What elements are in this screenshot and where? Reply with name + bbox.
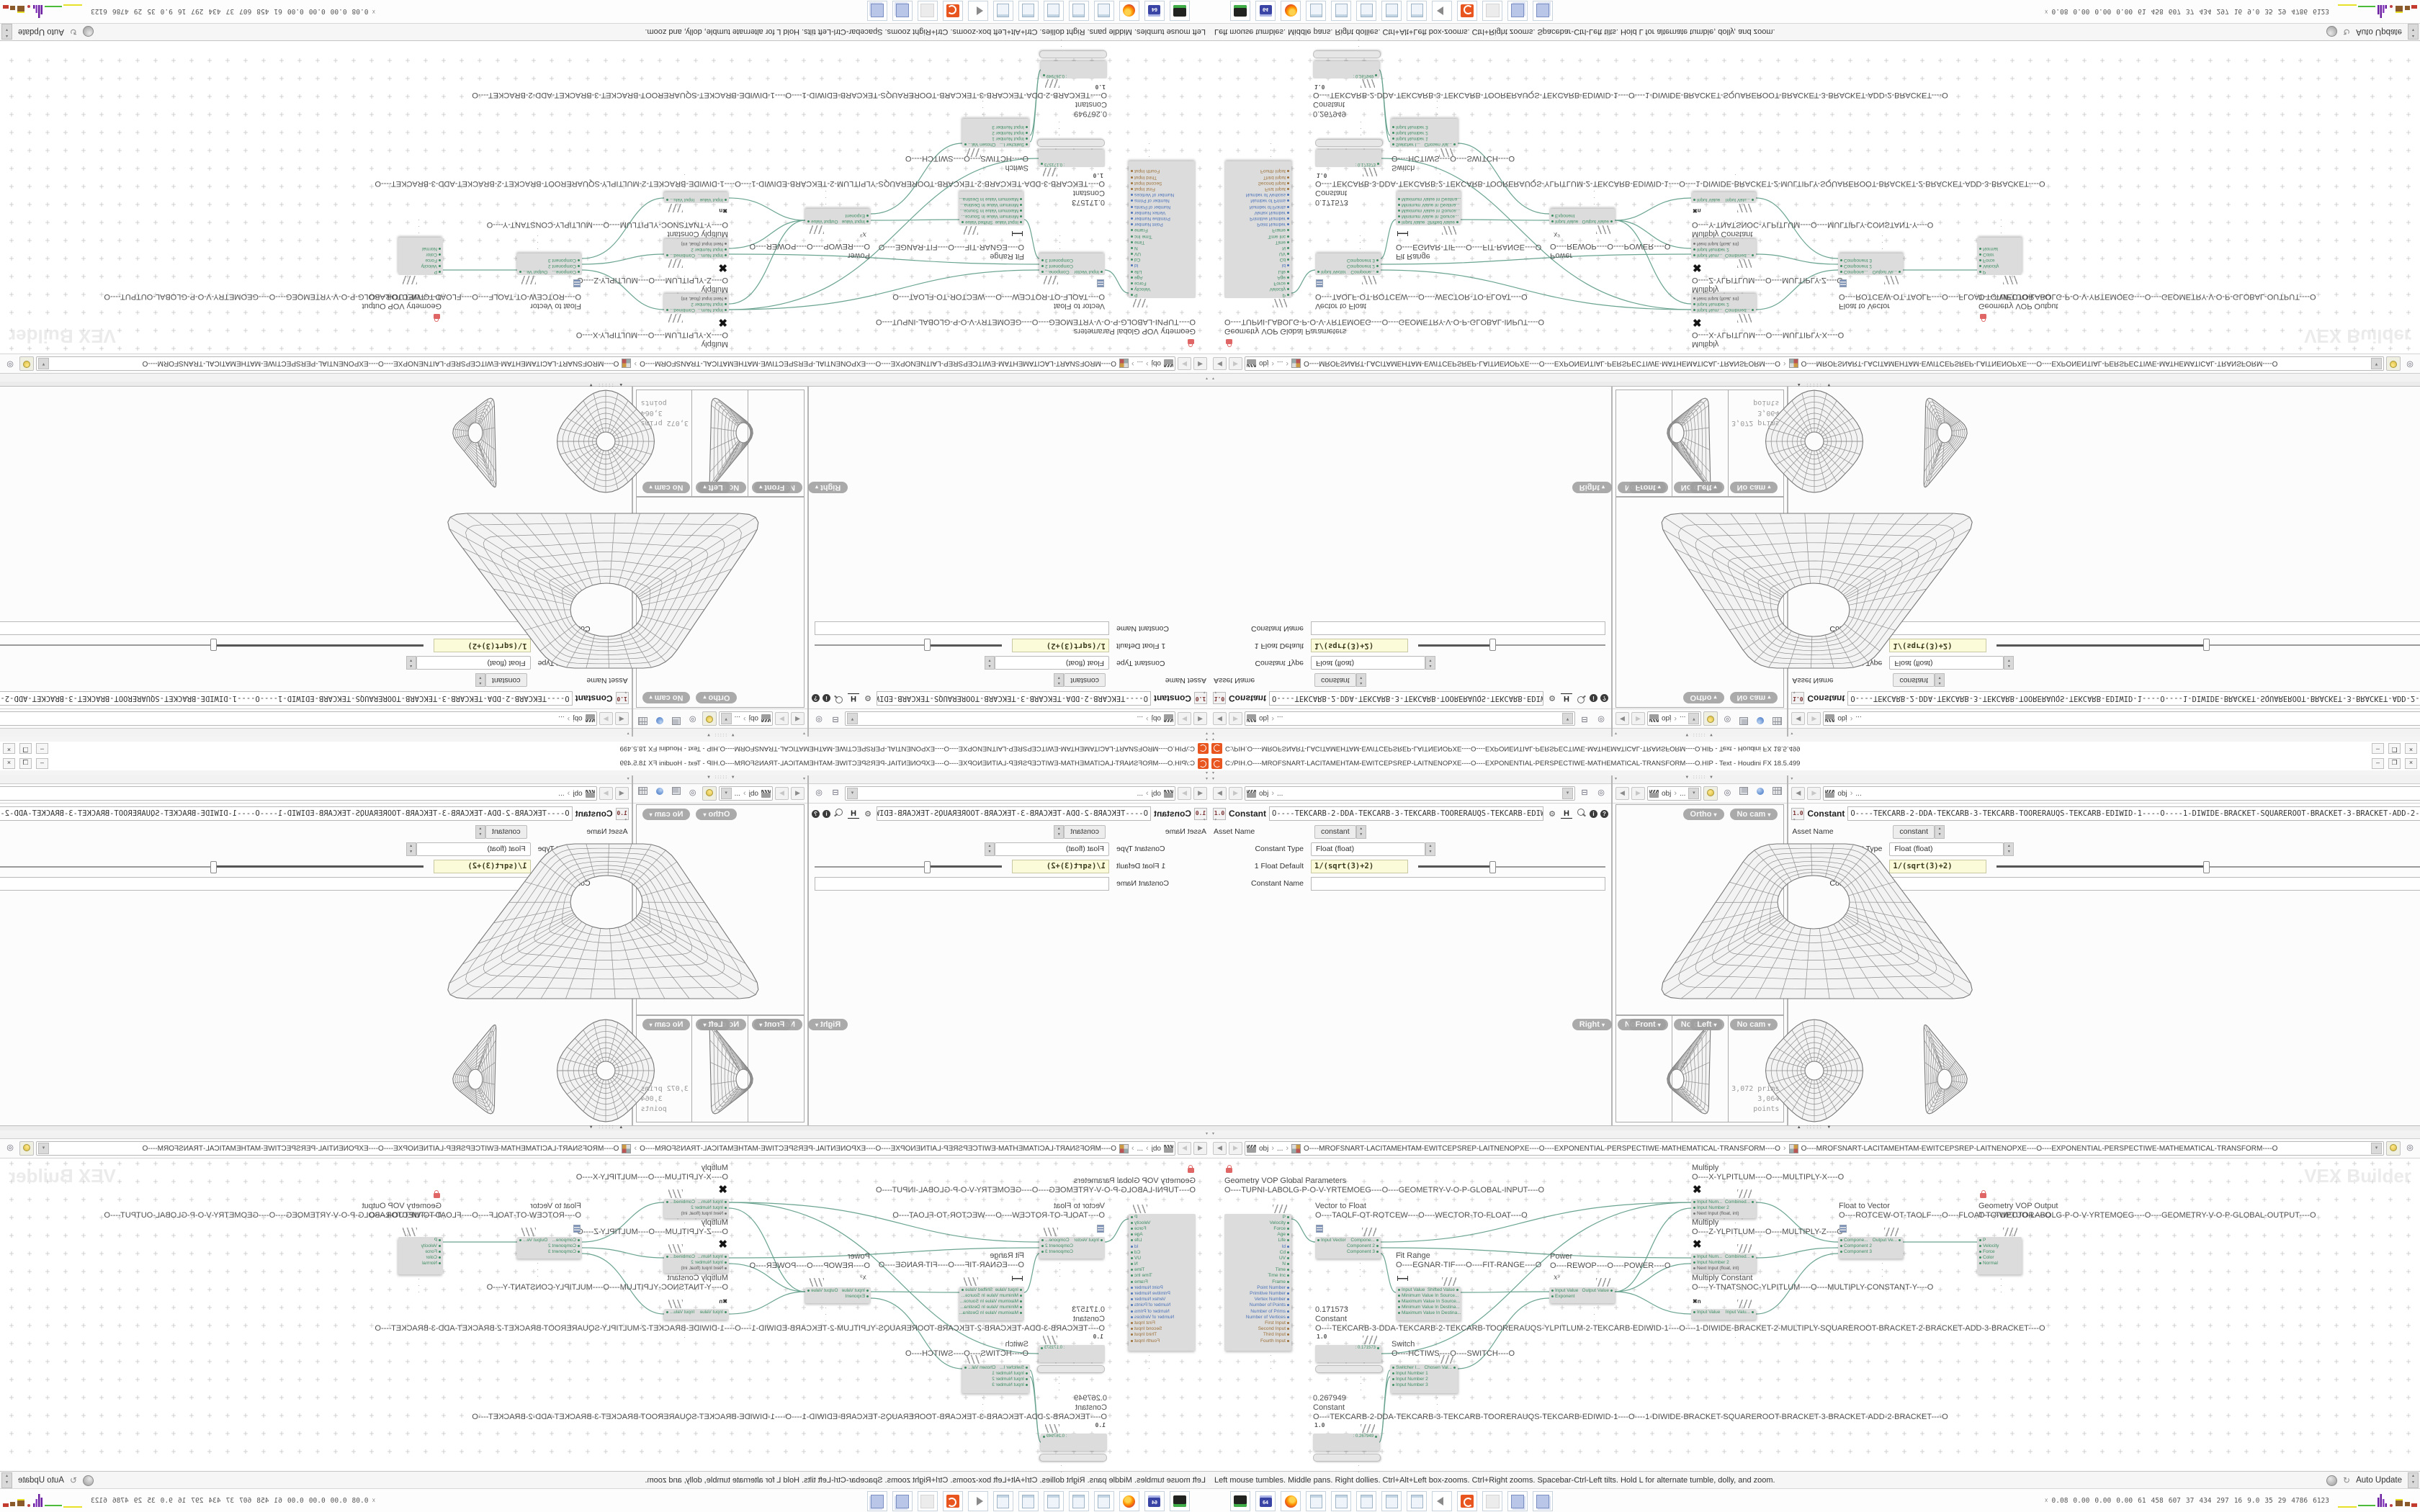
pane-tab-strip[interactable]: ▾▼ ::::: ▼	[633, 775, 807, 784]
output-port[interactable]: Component 2	[1041, 1243, 1073, 1248]
path-combo[interactable]: obj › ... ▾	[1245, 711, 1575, 726]
output-port[interactable]: Input Valu...	[1726, 1310, 1754, 1315]
float-default-field[interactable]: 1/(sqrt(3)+2)	[1889, 639, 1986, 653]
output-port[interactable]: Shifted Value	[1428, 220, 1458, 225]
float-default-field[interactable]: 1/(sqrt(3)+2)	[434, 639, 531, 653]
constant-node-icon[interactable]: 1.0	[616, 693, 629, 705]
breadcrumb-ellipsis[interactable]: ...	[558, 790, 564, 798]
back-arrow-icon[interactable]: ◀	[1213, 712, 1227, 725]
pane-tab-strip[interactable]: ▾	[1788, 728, 2420, 737]
output-port[interactable]: Output Ve...	[1873, 1238, 1901, 1243]
ortho-view[interactable]: Ortho ▾ No cam ▾	[1615, 496, 1784, 708]
output-port[interactable]: UV	[1279, 251, 1289, 256]
constant-node-icon[interactable]: 1.0	[1213, 693, 1226, 705]
asset-name-value[interactable]: constant	[485, 674, 527, 688]
node-flags-icon[interactable]	[521, 1228, 536, 1236]
input-port[interactable]: Input Number 2	[1392, 130, 1428, 135]
output-port[interactable]: Shifted Value	[962, 1287, 992, 1292]
camera-pill-left[interactable]: Left ▾	[1690, 1019, 1724, 1030]
breadcrumb-vopnet[interactable]: O----MROFSNART-LACITAMEHTAM-EWITCEPSREP-…	[143, 360, 619, 368]
vop-node-multiply-constant[interactable]: Input ValueInput Valu...	[1691, 192, 1756, 203]
output-port[interactable]: Combined...	[666, 253, 695, 258]
node-flags-icon[interactable]	[668, 1189, 683, 1198]
output-port[interactable]: Component 3	[1347, 1249, 1379, 1254]
shading-cube-icon[interactable]	[1736, 711, 1751, 726]
output-port[interactable]: Component 2	[1041, 264, 1073, 269]
input-port[interactable]: Component 3	[548, 258, 580, 263]
slider-handle[interactable]	[2203, 861, 2210, 873]
pane-tab-strip[interactable]: ▾	[1788, 775, 2420, 784]
info-icon[interactable]: i	[823, 695, 830, 703]
node-flags-icon[interactable]	[1362, 1228, 1376, 1236]
output-port[interactable]: Time Inc	[1268, 234, 1289, 239]
minimize-button[interactable]: –	[2372, 744, 2384, 755]
output-port[interactable]: Cd	[1131, 257, 1140, 262]
input-port[interactable]: Input Num...	[1693, 307, 1722, 312]
node-flags-icon[interactable]	[1596, 1278, 1610, 1287]
recook-icon[interactable]: ↻	[2343, 27, 2350, 37]
vop-node-global-params[interactable]: PVelocityForceAgeLifeIdCdUVNTimeTime Inc…	[1224, 161, 1291, 298]
nocam-pill[interactable]: No cam ▾	[1730, 1019, 1778, 1030]
output-port[interactable]: Time Inc	[1131, 234, 1152, 239]
breadcrumb-ellipsis[interactable]: ...	[1137, 790, 1143, 798]
constant-type-spinner[interactable]: ▲▼	[406, 657, 416, 670]
float-default-field[interactable]: 1/(sqrt(3)+2)	[1012, 639, 1109, 653]
constant-name-field[interactable]	[815, 622, 1109, 636]
constant-type-dropdown[interactable]: Float (float)	[1311, 657, 1425, 670]
input-port[interactable]: Component 3	[1840, 258, 1872, 263]
output-port[interactable]: Third Input	[1131, 1332, 1157, 1337]
input-port[interactable]: Compone...	[552, 269, 580, 274]
forward-arrow-icon[interactable]: ▶	[1178, 357, 1191, 370]
camera-pill-front[interactable]: Front ▾	[1628, 482, 1668, 493]
node-flags-icon[interactable]	[1043, 168, 1057, 176]
pin-icon[interactable]: ⊟	[828, 786, 843, 801]
constant-type-dropdown[interactable]: Float (float)	[416, 657, 531, 670]
shading-cube-icon[interactable]	[669, 711, 684, 726]
path-dropdown-icon[interactable]: ▾	[2371, 1143, 2382, 1154]
input-port[interactable]: Color	[1979, 252, 1994, 257]
breadcrumb-root[interactable]: obj	[1259, 715, 1268, 723]
vop-node-constant-b[interactable]: : 0.267949	[1313, 61, 1379, 78]
output-port[interactable]: Force	[1131, 1226, 1147, 1231]
slider-handle[interactable]	[1489, 639, 1496, 652]
output-port[interactable]: First Input	[1131, 186, 1155, 192]
asset-spinner[interactable]: ▲▼	[1356, 674, 1366, 688]
back-arrow-icon[interactable]: ◀	[1791, 787, 1805, 800]
input-port[interactable]: Input Num...	[1693, 253, 1722, 258]
output-port[interactable]: Velocity	[1131, 1220, 1150, 1225]
node-flags-icon[interactable]	[1596, 225, 1610, 234]
output-port[interactable]: Output Value	[1582, 1288, 1613, 1293]
taskbar-app-notepad[interactable]	[1407, 1491, 1427, 1511]
forward-arrow-icon[interactable]: ▶	[1178, 712, 1191, 725]
constant-name-field[interactable]	[0, 622, 531, 636]
input-port[interactable]: Next Input (float, int)	[681, 1211, 727, 1216]
output-port[interactable]: Vertex Number	[1255, 210, 1289, 215]
display-options-lamp-icon[interactable]	[2386, 1141, 2401, 1156]
node-flags-icon[interactable]	[1439, 1355, 1453, 1364]
output-port[interactable]: Frame	[1131, 1279, 1148, 1284]
taskbar-app-win64-save[interactable]: 64	[1255, 1491, 1276, 1511]
input-port[interactable]: Input Number 3	[992, 1382, 1028, 1387]
vop-node-vector-to-float[interactable]: Input VectorCompone...Component 2Compone…	[1315, 1237, 1381, 1259]
asset-name-value[interactable]: constant	[1893, 674, 1935, 688]
path-dropdown-icon[interactable]: ▾	[38, 1143, 49, 1154]
taskbar-app-volume[interactable]	[968, 1491, 988, 1511]
constant-type-spinner[interactable]: ▲▼	[985, 842, 995, 856]
constant-node-icon[interactable]: 1.0	[1791, 808, 1804, 820]
input-port[interactable]: Next Input (float, int)	[1693, 1266, 1739, 1271]
output-port[interactable]: Velocity	[1270, 287, 1289, 292]
node-flags-icon[interactable]	[2003, 1228, 2017, 1236]
cook-mode-spinner[interactable]: ▲▼	[2408, 1472, 2419, 1488]
title-bar[interactable]: C:/PIH.O----MROFSNART-LACITAMEHTAM-EWITC…	[1210, 741, 2420, 756]
minimize-button[interactable]: –	[2372, 758, 2384, 769]
constant-name-field[interactable]	[1311, 622, 1605, 636]
camera-pill-front[interactable]: Front ▾	[752, 482, 792, 493]
camera-pill-ortho[interactable]: Ortho ▾	[1683, 809, 1724, 820]
back-arrow-icon[interactable]: ◀	[1193, 787, 1207, 800]
node-flags-icon[interactable]	[1439, 148, 1453, 157]
node-flags-icon[interactable]	[1737, 314, 1752, 323]
vop-node-geometry-vop-output[interactable]: PVelocityForceColorNormal	[1977, 238, 2022, 275]
path-combo[interactable]: obj › ... ▾	[1823, 711, 2420, 726]
vop-node-constant-b[interactable]: : 0.267949	[1313, 1434, 1379, 1451]
constant-type-spinner[interactable]: ▲▼	[2004, 657, 2014, 670]
output-port[interactable]: Second Input	[1258, 1326, 1289, 1331]
vop-node-float-to-vector[interactable]: Compone...Output Ve...Component 2Compone…	[1838, 253, 1903, 275]
back-arrow-icon[interactable]: ◀	[1213, 357, 1227, 370]
left-view[interactable]: Left ▾ No cam ▾ 3,072 prims 3,064 points	[636, 390, 692, 498]
breadcrumb-geo[interactable]: O----MROFSNART-LACITAMEHTAM-EWITCEPSREP-…	[1304, 360, 1780, 368]
input-port[interactable]: Minimum Value In Source...	[962, 1293, 1022, 1298]
nocam-pill[interactable]: No cam ▾	[1730, 809, 1778, 820]
node-flags-icon[interactable]	[1133, 1205, 1147, 1213]
taskbar-app-notepad[interactable]	[1069, 1, 1089, 21]
output-port[interactable]: Id	[1131, 1244, 1138, 1249]
output-port[interactable]: Number of Prims	[1131, 1309, 1170, 1314]
node-name-field[interactable]: O----TEKCARB-2-DDA-TEKCARB-3-TEKCARB-TOO…	[1269, 806, 1543, 821]
node-flags-icon[interactable]	[668, 314, 683, 323]
collapsed-node-footer[interactable]	[1037, 1365, 1105, 1373]
taskbar-app-notepad[interactable]	[1094, 1491, 1114, 1511]
input-port[interactable]: Input Vector	[1317, 1238, 1346, 1243]
pane-tab-strip[interactable]: ▾	[0, 728, 632, 737]
input-port[interactable]: Force	[1979, 1249, 1995, 1254]
output-port[interactable]: Age	[1277, 275, 1289, 280]
input-port[interactable]: Normal	[422, 246, 441, 251]
output-port[interactable]: N	[1131, 1261, 1138, 1266]
output-port[interactable]: Number of Points	[1250, 204, 1289, 210]
quadview-grid-icon[interactable]	[636, 786, 650, 801]
tray-monitor-icon[interactable]: ☓	[2045, 1497, 2048, 1505]
input-port[interactable]: Input Number 2	[691, 302, 727, 307]
vop-node-global-params[interactable]: PVelocityForceAgeLifeIdCdUVNTimeTime Inc…	[1129, 161, 1196, 298]
output-port[interactable]: Vertex Number	[1131, 1297, 1165, 1302]
taskbar-app-dark-app[interactable]	[1230, 1, 1250, 21]
breadcrumb-root[interactable]: obj	[1259, 360, 1268, 368]
collapse-arrow-icon[interactable]: ▾	[1212, 737, 1214, 742]
node-flags-icon[interactable]	[1737, 1244, 1752, 1253]
input-port[interactable]: Component 2	[1840, 1243, 1872, 1248]
network-path-combo[interactable]: obj › ... › O----MROFSNART-LACITAMEHTAM-…	[1245, 1141, 2384, 1156]
vop-node-fit-range[interactable]: Input ValueShifted ValueMinimum Value In…	[1396, 1287, 1461, 1320]
input-port[interactable]: Minimum Value In Destina...	[960, 1305, 1022, 1310]
display-options-lamp-icon[interactable]	[702, 711, 717, 726]
asset-spinner[interactable]: ▲▼	[1054, 825, 1064, 839]
asset-spinner[interactable]: ▲▼	[1935, 674, 1945, 688]
output-port[interactable]: Second Input	[1131, 181, 1162, 186]
output-port[interactable]: UV	[1131, 1256, 1141, 1261]
pane-tab-strip[interactable]: ▾▼ ::::: ▼	[1613, 775, 1787, 784]
input-port[interactable]: Velocity	[1979, 1243, 1999, 1248]
constant-type-dropdown[interactable]: Float (float)	[995, 842, 1109, 856]
output-port[interactable]: Compone...	[1350, 1238, 1379, 1243]
output-port[interactable]: P	[1283, 1215, 1289, 1220]
output-port[interactable]: Primitive Number	[1250, 1291, 1289, 1296]
breadcrumb-ellipsis[interactable]: ...	[1277, 1145, 1283, 1153]
float-default-slider[interactable]	[1996, 860, 2420, 873]
collapse-arrow-icon[interactable]: ▾	[1206, 770, 1208, 775]
taskbar-app-notepad[interactable]	[993, 1491, 1013, 1511]
tray-monitor-icon[interactable]: ☓	[2045, 8, 2048, 16]
constant-type-spinner[interactable]: ▲▼	[985, 657, 995, 670]
pane-tab-strip[interactable]: ▾▼ ::::: ▼	[1613, 728, 1787, 737]
float-default-field[interactable]: 1/(sqrt(3)+2)	[1311, 639, 1408, 653]
front-view[interactable]: Front ▾ No cam ▾	[691, 1014, 748, 1122]
taskbar-app-notepad[interactable]	[1331, 1, 1351, 21]
input-port[interactable]: Color	[1979, 1255, 1994, 1260]
taskbar-app-script-doc[interactable]	[1533, 1, 1553, 21]
output-port[interactable]: Shifted Value	[962, 220, 992, 225]
breadcrumb-root[interactable]: obj	[573, 790, 582, 798]
vop-node-switch[interactable]: Switcher I...Chosen Val...Input Number 1…	[962, 1364, 1030, 1393]
output-port[interactable]: Time	[1131, 1267, 1144, 1272]
constant-type-spinner[interactable]: ▲▼	[2004, 842, 2014, 856]
forward-arrow-icon[interactable]: ▶	[1229, 787, 1242, 800]
input-port[interactable]: Maximum Value In Destina...	[959, 1310, 1022, 1315]
left-view[interactable]: Left ▾ No cam ▾ 3,072 prims 3,064 points	[1729, 1014, 1785, 1122]
input-port[interactable]: Next Input (float, int)	[1693, 296, 1739, 301]
path-combo[interactable]: obj › ... ▾	[719, 711, 773, 726]
breadcrumb-root[interactable]: obj	[749, 715, 758, 723]
taskbar-app-notepad[interactable]	[1044, 1491, 1064, 1511]
vop-node-vector-to-float[interactable]: Input VectorCompone...Component 2Compone…	[1039, 1237, 1105, 1259]
breadcrumb-geo[interactable]: O----MROFSNART-LACITAMEHTAM-EWITCEPSREP-…	[640, 360, 1116, 368]
input-port[interactable]: Exponent	[1551, 213, 1574, 218]
input-port[interactable]: Input Value	[1551, 219, 1578, 224]
cook-mode-spinner[interactable]: ▲▼	[1, 1472, 12, 1488]
gear-icon[interactable]: ⚙	[1546, 694, 1558, 703]
camera-pill-right[interactable]: Right ▾	[808, 1019, 848, 1030]
node-flags-icon[interactable]	[1361, 1424, 1375, 1433]
close-button[interactable]: ×	[2405, 758, 2417, 769]
output-port[interactable]: First Input	[1131, 1320, 1155, 1326]
asset-name-value[interactable]: constant	[1064, 674, 1106, 688]
constant-name-field[interactable]	[815, 877, 1109, 891]
viewport-area[interactable]: Ortho ▾ No cam ▾ Right ▾ No cam ▾	[633, 388, 807, 710]
float-default-slider[interactable]	[1418, 860, 1605, 873]
input-port[interactable]: Force	[425, 258, 441, 263]
path-combo[interactable]: obj › ... ▾	[845, 711, 1175, 726]
viewport-area[interactable]: Ortho ▾ No cam ▾ Right ▾ No cam ▾	[633, 802, 807, 1124]
forward-arrow-icon[interactable]: ▶	[599, 787, 613, 800]
output-port[interactable]: Age	[1131, 275, 1143, 280]
path-combo[interactable]: obj › ... ▾	[719, 786, 773, 801]
pane-tab-strip[interactable]: ▾	[0, 373, 1210, 382]
output-port[interactable]: Compone...	[1041, 269, 1070, 274]
path-combo[interactable]: obj › ... ▾	[1245, 786, 1575, 801]
input-port[interactable]: Input Number 2	[691, 247, 727, 252]
output-port[interactable]: Component 2	[1347, 1243, 1379, 1248]
output-port[interactable]: P	[1131, 292, 1137, 297]
output-port[interactable]: Output Value	[807, 219, 838, 224]
collapsed-node-footer[interactable]	[1315, 1365, 1383, 1373]
output-port[interactable]: Life	[1131, 269, 1142, 274]
input-port[interactable]: Maximum Value In Destina...	[1398, 197, 1461, 202]
input-port[interactable]: P	[434, 1238, 441, 1243]
breadcrumb-ellipsis[interactable]: ...	[1137, 715, 1143, 723]
output-port[interactable]: Chosen Val...	[964, 1365, 996, 1370]
houdini-help-icon[interactable]: H	[1561, 694, 1572, 703]
constant-type-spinner[interactable]: ▲▼	[406, 842, 416, 856]
input-port[interactable]: Input Value	[700, 1310, 727, 1315]
vop-node-multiply-z[interactable]: Input Num...Combined...Input Number 2Nex…	[664, 239, 729, 258]
search-icon[interactable]	[1575, 694, 1587, 703]
search-icon[interactable]	[833, 809, 845, 819]
float-default-slider[interactable]	[0, 640, 423, 652]
vop-node-switch[interactable]: Switcher I...Chosen Val...Input Number 1…	[962, 119, 1030, 148]
ortho-view[interactable]: Ortho ▾ No cam ▾	[636, 804, 805, 1016]
input-port[interactable]: P	[434, 269, 441, 274]
restore-button[interactable]: ❐	[19, 758, 32, 769]
taskbar-app-script-doc[interactable]	[1507, 1491, 1528, 1511]
close-button[interactable]: ×	[2405, 744, 2417, 755]
node-flags-icon[interactable]	[668, 204, 683, 212]
input-port[interactable]: Input Number 2	[1392, 1377, 1428, 1382]
close-button[interactable]: ×	[3, 744, 15, 755]
breadcrumb-ellipsis[interactable]: ...	[1277, 360, 1283, 368]
breadcrumb-root[interactable]: obj	[749, 790, 758, 798]
node-flags-icon[interactable]	[1737, 1300, 1752, 1308]
input-port[interactable]: Component 3	[1840, 1249, 1872, 1254]
input-port[interactable]: Switcher I...	[1392, 1365, 1420, 1370]
forward-arrow-icon[interactable]: ▶	[1807, 712, 1821, 725]
input-port[interactable]: Next Input (float, int)	[681, 1266, 727, 1271]
slider-handle[interactable]	[210, 639, 217, 652]
output-port[interactable]: Input Valu...	[666, 197, 694, 202]
input-port[interactable]: Maximum Value In Source...	[960, 208, 1022, 213]
input-port[interactable]: Next Input (float, int)	[681, 296, 727, 301]
radial-menu-icon[interactable]: ◎	[2403, 1141, 2417, 1156]
taskbar-app-notepad[interactable]	[1018, 1491, 1039, 1511]
front-view[interactable]: Front ▾ No cam ▾	[1672, 1014, 1729, 1122]
taskbar-app-script-doc[interactable]	[1507, 1, 1528, 21]
minimize-button[interactable]: –	[36, 758, 48, 769]
output-port[interactable]: Shifted Value	[1428, 1287, 1458, 1292]
input-port[interactable]: Exponent	[846, 213, 869, 218]
output-port[interactable]: Fourth Input	[1131, 168, 1160, 174]
output-port[interactable]: Second Input	[1258, 181, 1289, 186]
output-port[interactable]: Combined...	[666, 307, 695, 312]
constant-node-icon[interactable]: 1.0	[1194, 808, 1207, 820]
vop-node-float-to-vector[interactable]: Compone...Output Ve...Component 2Compone…	[1838, 1237, 1903, 1259]
input-port[interactable]: Input Number 2	[1693, 1260, 1729, 1265]
radial-menu-icon[interactable]: ◎	[812, 711, 826, 726]
quadview-grid-icon[interactable]	[1770, 711, 1784, 726]
input-port[interactable]: Input Value	[842, 1288, 869, 1293]
input-port[interactable]: Maximum Value In Destina...	[1398, 1310, 1461, 1315]
input-port[interactable]: Input Num...	[698, 253, 727, 258]
taskbar-app-win64-save[interactable]: 64	[1144, 1491, 1165, 1511]
input-port[interactable]: Minimum Value In Source...	[1398, 1293, 1458, 1298]
vop-node-global-params[interactable]: PVelocityForceAgeLifeIdCdUVNTimeTime Inc…	[1224, 1214, 1291, 1351]
radial-menu-icon[interactable]: ◎	[1594, 786, 1608, 801]
constant-name-field[interactable]	[1311, 877, 1605, 891]
recook-icon[interactable]: ↻	[70, 1475, 77, 1485]
title-bar[interactable]: C:/PIH.O----MROFSNART-LACITAMEHTAM-EWITC…	[1210, 756, 2420, 771]
node-name-field[interactable]: O----TEKCARB-2-DDA-TEKCARB-3-TEKCARB-TOO…	[1269, 691, 1543, 706]
node-flags-icon[interactable]	[1363, 168, 1377, 176]
input-port[interactable]: Input Value	[1693, 1310, 1720, 1315]
output-port[interactable]: Number of Points	[1250, 1302, 1289, 1308]
back-arrow-icon[interactable]: ◀	[1193, 357, 1207, 370]
radial-menu-icon[interactable]: ◎	[1594, 711, 1608, 726]
path-dropdown-icon[interactable]: ▾	[1562, 713, 1573, 724]
forward-arrow-icon[interactable]: ▶	[775, 787, 789, 800]
ortho-view[interactable]: Ortho ▾ No cam ▾	[1615, 804, 1784, 1016]
constant-node-icon[interactable]: 1.0	[1791, 693, 1804, 705]
gear-icon[interactable]: ⚙	[862, 694, 874, 703]
output-port[interactable]: Force	[1273, 281, 1289, 286]
taskbar-app-script-doc[interactable]	[867, 1491, 887, 1511]
path-dropdown-icon[interactable]: ▾	[721, 713, 732, 724]
taskbar-app-firefox[interactable]	[1119, 1491, 1139, 1511]
memory-ball-icon[interactable]	[83, 27, 94, 37]
node-flags-icon[interactable]	[403, 1228, 417, 1236]
output-port[interactable]: Number of Vertices	[1131, 192, 1174, 197]
breadcrumb-geo[interactable]: O----MROFSNART-LACITAMEHTAM-EWITCEPSREP-…	[640, 1145, 1116, 1153]
breadcrumb-vopnet[interactable]: O----MROFSNART-LACITAMEHTAM-EWITCEPSREP-…	[143, 1145, 619, 1153]
taskbar-app-notepad[interactable]	[1407, 1, 1427, 21]
output-port[interactable]: Combined...	[1725, 307, 1754, 312]
path-dropdown-icon[interactable]: ▾	[721, 788, 732, 799]
constant-type-dropdown[interactable]: Float (float)	[1889, 657, 2004, 670]
output-port[interactable]: Time Inc	[1131, 1273, 1152, 1278]
output-port[interactable]: Component 3	[1041, 1249, 1073, 1254]
vop-node-fit-range[interactable]: Input ValueShifted ValueMinimum Value In…	[959, 1287, 1024, 1320]
taskbar-app-disabled-app[interactable]	[1482, 1491, 1502, 1511]
vop-node-geometry-vop-output[interactable]: PVelocityForceColorNormal	[398, 1237, 443, 1274]
info-icon[interactable]: i	[1590, 810, 1597, 818]
collapsed-node-footer[interactable]	[1313, 1454, 1381, 1462]
output-port[interactable]: Frame	[1131, 228, 1148, 233]
memory-ball-icon[interactable]	[83, 1475, 94, 1486]
input-port[interactable]: Minimum Value In Destina...	[960, 202, 1022, 207]
output-port[interactable]: Cd	[1280, 257, 1289, 262]
output-port[interactable]: Number of Vertices	[1246, 1315, 1289, 1320]
slider-handle[interactable]	[924, 861, 931, 873]
taskbar-app-script-doc[interactable]	[892, 1491, 913, 1511]
input-port[interactable]: Component 2	[1840, 264, 1872, 269]
output-port[interactable]: Component 3	[1041, 258, 1073, 263]
taskbar-app-dark-app[interactable]	[1170, 1, 1190, 21]
slider-handle[interactable]	[924, 639, 931, 652]
radial-menu-icon[interactable]: ◎	[3, 1141, 17, 1156]
path-dropdown-icon[interactable]: ▾	[38, 358, 49, 369]
output-port[interactable]: Point Number	[1257, 1285, 1289, 1290]
